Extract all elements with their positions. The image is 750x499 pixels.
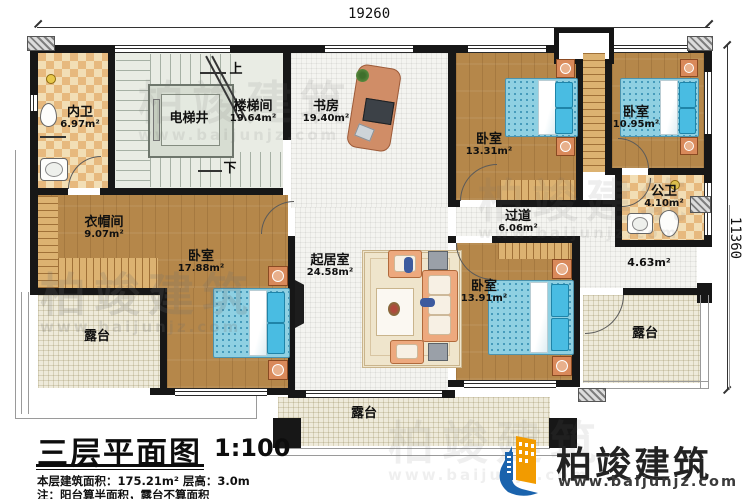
corner-hatch [687,36,713,51]
room-label-inner-bath: 内卫6.97m² [60,106,99,130]
terrace-rail [700,295,701,388]
pillow [679,82,696,108]
room-label-terrace-bottom: 露台 [351,407,377,421]
room-label-study: 书房19.40m² [303,100,349,124]
stair-down-label: 下 [223,162,236,176]
corner-hatch [690,196,711,213]
sink-bowl [632,217,648,231]
window [306,390,442,398]
room-label-terrace-left: 露台 [84,330,110,344]
pillow [551,284,569,317]
room-label-elevator: 电梯井 [169,112,208,126]
computer-monitor [362,98,394,125]
wall [30,188,68,195]
wall [160,288,167,395]
dimension-width-label: 19260 [348,6,390,22]
wall [448,45,456,207]
room-label-living: 起居室24.58m² [307,254,353,278]
window [115,45,230,53]
wall [108,52,115,195]
wall [648,168,712,175]
terrace-outline [15,150,16,419]
window [704,72,712,134]
wall [615,168,622,247]
table-decor [388,302,400,316]
nightstand [268,266,288,286]
pillow [679,108,696,134]
wall [605,45,612,175]
pillow [551,318,569,351]
towel-bar [40,136,66,138]
wardrobe [500,180,574,200]
person [420,298,435,307]
logo-building-icon [492,430,550,496]
nightstand [552,356,572,376]
person [404,257,413,273]
wardrobe [583,53,605,172]
wall [283,45,291,140]
nightstand [556,59,575,78]
logo-website: www.baijunjz.com [558,474,738,490]
wall [615,240,712,247]
stair-up-label: 上 [229,63,242,77]
terrace-rail [21,292,22,414]
window [175,388,267,396]
bed-sheet [660,80,678,135]
bed-sheet [530,282,548,353]
wall [496,200,615,207]
nightstand [556,137,575,156]
room-label-public-bath: 公卫4.10m² [644,185,683,209]
room-label-bedroom1: 卧室13.31m² [466,133,512,157]
room-label-bedroom4: 卧室13.91m² [461,280,507,304]
pillow [555,82,573,108]
wall [30,45,38,295]
pillow [267,292,285,323]
stair-treads [116,60,150,185]
room-label-stairwell: 楼梯间19.64m² [230,100,276,124]
end-table [428,343,448,361]
nightstand [552,259,572,279]
terrace-outline [256,396,257,419]
window [464,380,556,388]
bed-sheet [538,80,556,135]
toilet [40,103,57,127]
wall [492,236,580,243]
terrace-rail [708,295,709,388]
wall [100,188,283,195]
stair-down-arrow [198,170,222,172]
window [30,95,38,111]
room-label-cloakroom: 衣帽间9.07m² [84,216,123,240]
window [325,45,413,53]
plan-title: 三层平面图 [37,428,202,473]
pillow [555,108,573,134]
wardrobe [58,258,158,288]
nightstand [268,360,288,380]
wardrobe [498,243,570,259]
stair-treads [150,54,240,84]
plan-note: 注：阳台算半面积，露台不算面积 [37,487,210,499]
sofa-cushion [396,344,418,359]
pillow [267,323,285,354]
sofa-cushion [428,315,451,335]
window [614,45,688,53]
sink-bowl [45,162,63,177]
dimension-height-label: 11360 [727,217,743,259]
corner-hatch [578,388,606,402]
terrace-rail [583,381,709,382]
room-label-corridor: 过道6.06m² [498,210,537,234]
nightstand [680,137,698,155]
room-label-terrace-right: 露台 [632,327,658,341]
terrace-outline [15,418,257,419]
room-label-balcony-area: 4.63m² [627,257,670,269]
window [468,45,546,53]
end-table [428,251,448,270]
wall [448,236,456,243]
light-fixture [46,74,56,84]
wardrobe [38,196,58,288]
stair-up-arrow [200,72,226,74]
nightstand [680,59,698,77]
elevator-rail [153,99,160,141]
floor-plan-canvas: 19260 11360 [0,0,750,499]
bed-sheet [249,290,267,356]
terrace-rail [28,292,29,414]
room-label-bedroom2: 卧室10.95m² [613,106,659,130]
wall [623,288,697,295]
sofa-cushion [428,275,451,295]
corner-hatch [27,36,55,51]
plant [356,69,369,82]
tv [295,280,304,328]
room-label-bedroom3: 卧室17.88m² [178,250,224,274]
wall [30,288,167,295]
logo-mark [492,430,550,496]
plan-scale: 1:100 [214,434,290,462]
wall [448,200,460,207]
